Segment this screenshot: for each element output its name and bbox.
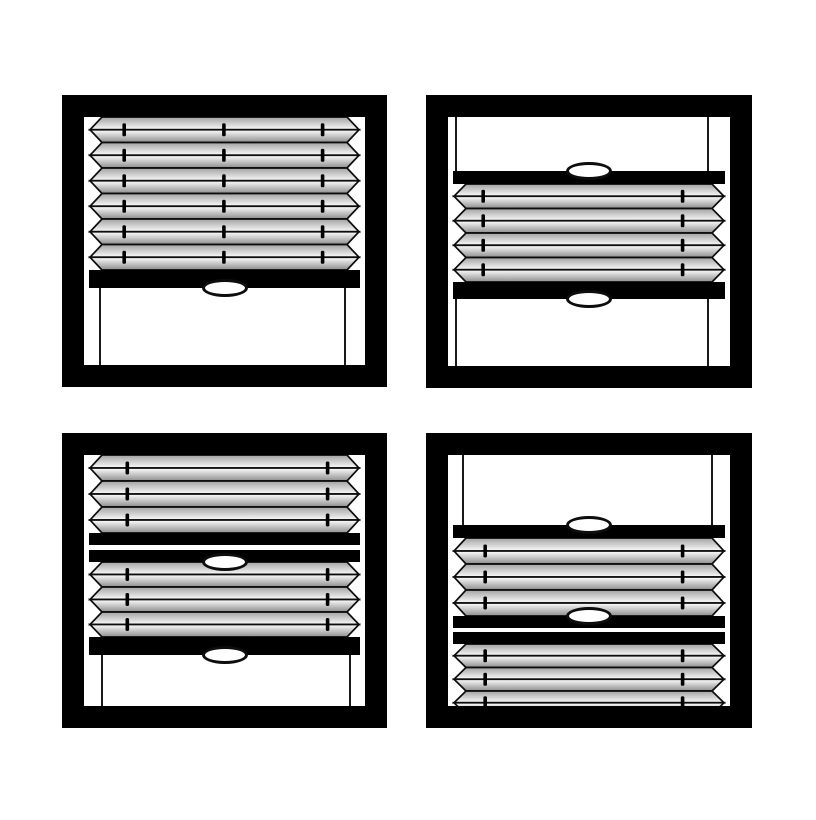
pleat-band-upper-face <box>90 481 359 494</box>
lift-cords-right <box>349 655 351 706</box>
lower-cords-right <box>707 299 709 366</box>
lift-cords-right <box>344 288 346 365</box>
top-rail-handle <box>566 162 612 180</box>
window-opening-bottom-right <box>448 455 730 706</box>
window-opening-top-left <box>84 117 365 365</box>
window-opening-top-right <box>448 117 730 366</box>
cord-guide-tick <box>326 593 330 606</box>
cord-guide-tick <box>126 488 130 501</box>
cord-guide-tick <box>126 618 130 631</box>
pleat-band-upper-face <box>90 612 359 625</box>
upper-cords-right <box>707 117 709 171</box>
lower-fabric-panel <box>90 562 359 637</box>
cord-guide-tick <box>126 593 130 606</box>
middle-rail-lower-handle <box>202 553 248 571</box>
cord-guide-tick <box>222 251 226 264</box>
middle-rail-upper-handle <box>566 607 612 625</box>
pleat-band-lower-face <box>90 494 359 507</box>
lower-fabric-panel <box>454 644 724 706</box>
pleat-band-upper-face <box>90 507 359 520</box>
middle-rail-lower <box>453 632 725 644</box>
cord-guide-tick <box>681 214 685 227</box>
lift-cords-left <box>101 655 103 706</box>
cord-guide-tick <box>326 514 330 527</box>
cord-guide-tick <box>681 597 685 610</box>
cord-guide-tick <box>126 568 130 581</box>
pleat-band-lower-face <box>90 625 359 638</box>
window-frame-bottom-left <box>62 433 387 728</box>
pleat-band-lower-face <box>90 468 359 481</box>
cord-guide-tick <box>483 571 487 584</box>
cord-guide-tick <box>681 571 685 584</box>
cord-guide-tick <box>222 200 226 213</box>
cord-guide-tick <box>122 225 126 238</box>
window-frame-bottom-right <box>426 433 752 728</box>
lift-cords-left <box>99 288 101 365</box>
cord-guide-tick <box>681 239 685 252</box>
bottom-rail-handle <box>202 646 248 664</box>
cord-guide-tick <box>326 488 330 501</box>
cord-guide-tick <box>681 696 685 706</box>
window-frame-top-left <box>62 95 387 387</box>
cord-guide-tick <box>321 149 325 162</box>
middle-rail-upper <box>89 533 360 545</box>
cord-guide-tick <box>222 225 226 238</box>
cord-guide-tick <box>681 190 685 203</box>
cord-guide-tick <box>126 462 130 475</box>
cord-guide-tick <box>122 123 126 136</box>
cord-guide-tick <box>483 545 487 558</box>
diagram-canvas <box>0 0 816 820</box>
cord-guide-tick <box>321 200 325 213</box>
cord-guide-tick <box>321 251 325 264</box>
cord-guide-tick <box>222 174 226 187</box>
lower-cords-left <box>455 299 457 366</box>
window-frame-top-right <box>426 95 752 388</box>
upper-cords-right <box>711 455 713 525</box>
cord-guide-tick <box>321 174 325 187</box>
cord-guide-tick <box>326 618 330 631</box>
cord-guide-tick <box>122 200 126 213</box>
cord-guide-tick <box>481 239 485 252</box>
cord-guide-tick <box>681 649 685 662</box>
cord-guide-tick <box>326 462 330 475</box>
cord-guide-tick <box>483 649 487 662</box>
cord-guide-tick <box>222 149 226 162</box>
cord-guide-tick <box>321 225 325 238</box>
upper-cords-left <box>462 455 464 525</box>
upper-fabric-panel <box>90 455 359 533</box>
bottom-rail-handle <box>566 290 612 308</box>
window-opening-bottom-left <box>84 455 365 706</box>
pleat-band-lower-face <box>90 575 359 588</box>
cord-guide-tick <box>681 545 685 558</box>
cord-guide-tick <box>481 214 485 227</box>
cord-guide-tick <box>681 263 685 276</box>
cord-guide-tick <box>122 251 126 264</box>
fabric-panel <box>90 117 359 270</box>
fabric-panel <box>454 184 724 282</box>
cord-guide-tick <box>122 149 126 162</box>
pleat-band-lower-face <box>90 520 359 533</box>
pleat-band-upper-face <box>90 587 359 600</box>
cord-guide-tick <box>126 514 130 527</box>
upper-fabric-panel <box>454 538 724 616</box>
top-rail-handle <box>566 516 612 534</box>
upper-cords-left <box>455 117 457 171</box>
pleat-band-upper-face <box>90 455 359 468</box>
cord-guide-tick <box>681 673 685 686</box>
cord-guide-tick <box>483 696 487 706</box>
cord-guide-tick <box>483 673 487 686</box>
cord-guide-tick <box>122 174 126 187</box>
cord-guide-tick <box>483 597 487 610</box>
cord-guide-tick <box>326 568 330 581</box>
cord-guide-tick <box>481 263 485 276</box>
pleat-band-lower-face <box>90 600 359 613</box>
bottom-rail-handle <box>202 279 248 297</box>
cord-guide-tick <box>222 123 226 136</box>
cord-guide-tick <box>321 123 325 136</box>
cord-guide-tick <box>481 190 485 203</box>
